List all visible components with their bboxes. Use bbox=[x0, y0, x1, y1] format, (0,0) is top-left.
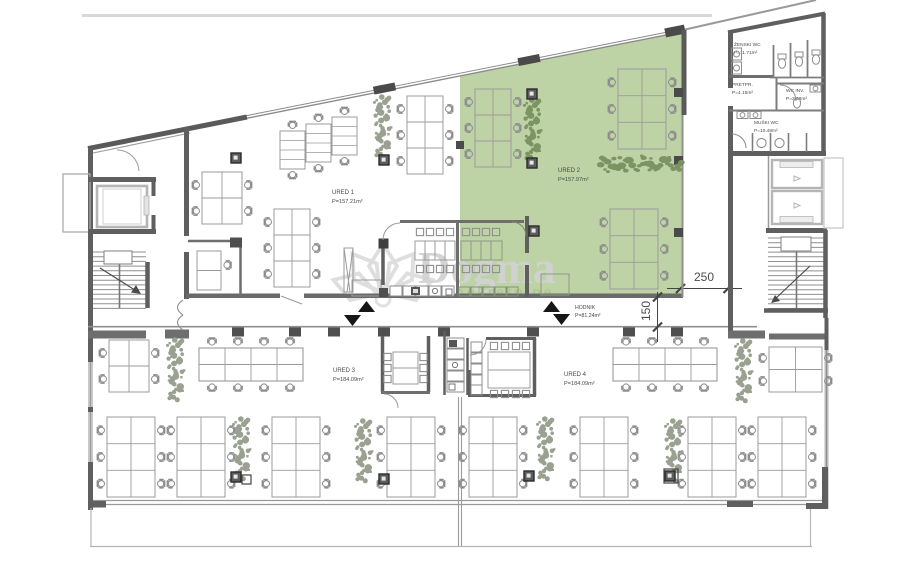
svg-text:PRETPR.: PRETPR. bbox=[732, 82, 753, 88]
svg-text:HODNIK: HODNIK bbox=[575, 305, 596, 311]
svg-text:250: 250 bbox=[694, 270, 714, 284]
svg-text:P=4.15m²: P=4.15m² bbox=[732, 90, 753, 96]
svg-text:P=81,24m²: P=81,24m² bbox=[575, 313, 601, 319]
svg-text:P=3.68m²: P=3.68m² bbox=[786, 96, 807, 102]
svg-text:URED 2: URED 2 bbox=[558, 168, 581, 174]
svg-text:URED 1: URED 1 bbox=[332, 190, 355, 196]
svg-text:WC INV.: WC INV. bbox=[786, 88, 804, 94]
svg-text:150: 150 bbox=[639, 301, 653, 321]
svg-text:P=157.97m²: P=157.97m² bbox=[558, 177, 589, 183]
svg-text:MUŠKI WC: MUŠKI WC bbox=[754, 119, 779, 126]
svg-text:URED 4: URED 4 bbox=[564, 372, 587, 378]
svg-text:ŽENSKI WC: ŽENSKI WC bbox=[734, 40, 761, 48]
svg-text:P=184.09m²: P=184.09m² bbox=[564, 381, 595, 387]
svg-text:P=157.21m²: P=157.21m² bbox=[332, 199, 363, 205]
svg-text:P=10.48m²: P=10.48m² bbox=[754, 128, 778, 134]
svg-text:P=184.09m²: P=184.09m² bbox=[333, 377, 364, 383]
svg-text:URED 3: URED 3 bbox=[333, 368, 356, 374]
